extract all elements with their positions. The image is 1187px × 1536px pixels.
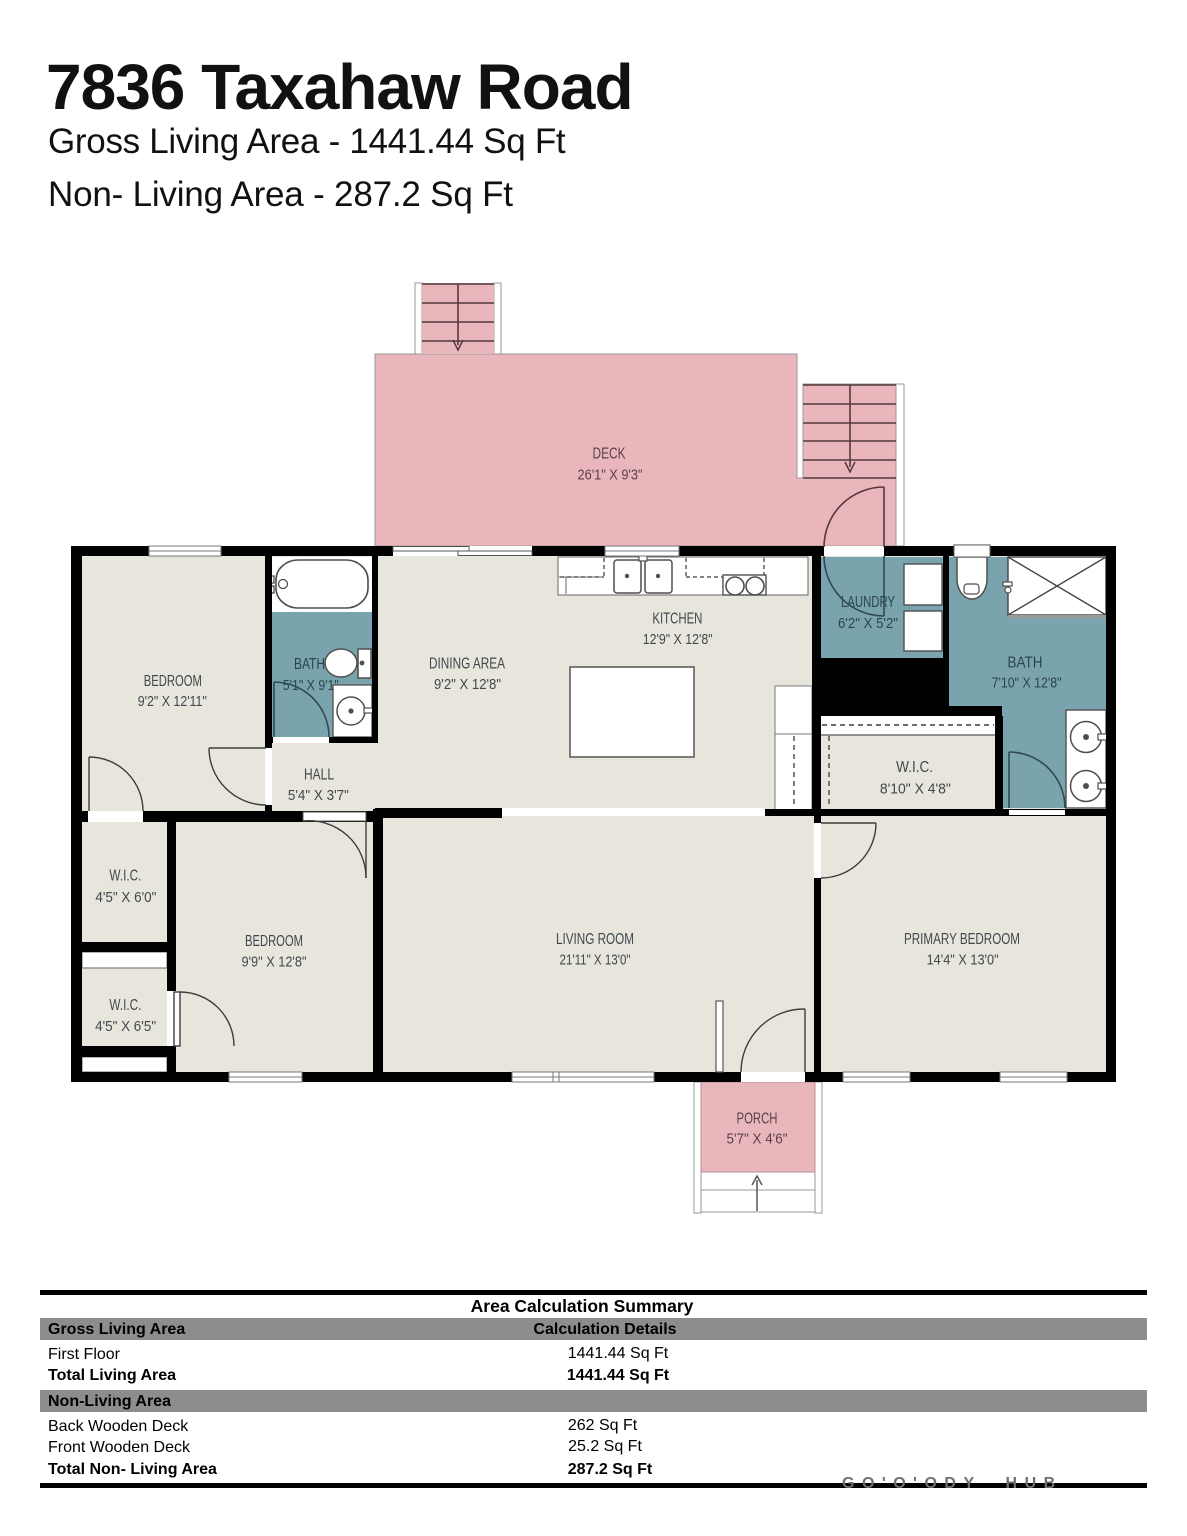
svg-text:5'1" X 9'1": 5'1" X 9'1" <box>283 678 339 694</box>
svg-text:W.I.C.: W.I.C. <box>896 759 933 776</box>
svg-text:8'10" X 4'8": 8'10" X 4'8" <box>880 782 951 798</box>
svg-text:DINING AREA: DINING AREA <box>429 656 505 673</box>
svg-text:DECK: DECK <box>593 446 626 463</box>
svg-text:BATH: BATH <box>1008 655 1043 672</box>
svg-text:BEDROOM: BEDROOM <box>245 933 303 950</box>
svg-text:5'4" X 3'7": 5'4" X 3'7" <box>288 788 349 804</box>
svg-text:6'2" X 5'2": 6'2" X 5'2" <box>838 616 898 632</box>
svg-text:9'2" X 12'8": 9'2" X 12'8" <box>434 677 501 693</box>
svg-text:21'11" X 13'0": 21'11" X 13'0" <box>560 953 631 969</box>
svg-text:BATH: BATH <box>294 656 325 673</box>
svg-text:9'2" X 12'11": 9'2" X 12'11" <box>138 694 207 710</box>
svg-text:4'5" X 6'5": 4'5" X 6'5" <box>95 1019 156 1035</box>
svg-text:HALL: HALL <box>304 767 334 784</box>
svg-text:26'1" X 9'3": 26'1" X 9'3" <box>578 468 643 484</box>
svg-text:9'9" X 12'8": 9'9" X 12'8" <box>242 955 307 971</box>
svg-text:12'9" X 12'8": 12'9" X 12'8" <box>643 632 713 648</box>
svg-text:PRIMARY BEDROOM: PRIMARY BEDROOM <box>904 931 1020 948</box>
svg-text:W.I.C.: W.I.C. <box>109 868 141 885</box>
svg-text:7'10" X 12'8": 7'10" X 12'8" <box>992 676 1062 692</box>
svg-text:W.I.C.: W.I.C. <box>109 997 141 1014</box>
svg-text:LAUNDRY: LAUNDRY <box>841 594 895 611</box>
svg-text:LIVING ROOM: LIVING ROOM <box>556 931 634 948</box>
svg-text:PORCH: PORCH <box>737 1111 778 1128</box>
svg-text:BEDROOM: BEDROOM <box>144 673 202 690</box>
svg-text:14'4" X 13'0": 14'4" X 13'0" <box>927 953 999 969</box>
svg-text:KITCHEN: KITCHEN <box>652 611 702 628</box>
svg-text:4'5" X 6'0": 4'5" X 6'0" <box>95 890 156 906</box>
svg-text:5'7" X 4'6": 5'7" X 4'6" <box>727 1132 788 1148</box>
